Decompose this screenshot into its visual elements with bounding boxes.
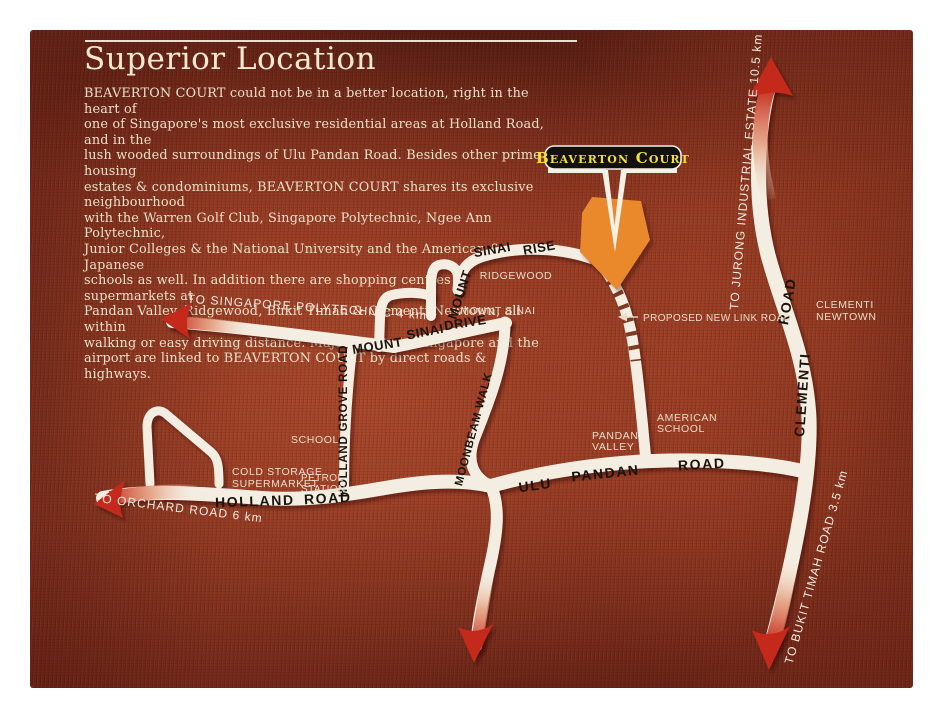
label-mount-sinai-estate: MOUNT SINAI	[460, 305, 535, 317]
label-ulu: ULU	[518, 475, 553, 496]
label-petrol-2: STATION	[301, 484, 346, 495]
label-school: SCHOOL	[291, 434, 339, 446]
label-pandan-valley-2: VALLEY	[592, 441, 635, 453]
label-clementi-newtown-2: NEWTOWN	[816, 311, 877, 323]
beaverton-court-label: Beaverton Court	[536, 149, 690, 167]
label-proposed-link: PROPOSED NEW LINK ROAD	[643, 313, 791, 324]
label-ridgewood: RIDGEWOOD	[480, 270, 552, 282]
label-american-school-2: SCHOOL	[657, 423, 705, 435]
label-ulu-road: ROAD	[678, 455, 726, 473]
label-petrol-1: PETROL	[301, 473, 343, 484]
map-canvas: Beaverton Court MOUNT SINAI RISE MOUNT S…	[0, 0, 943, 717]
label-clementi-newtown-1: CLEMENTI	[816, 299, 874, 311]
arrow-fade-jurong	[760, 88, 769, 200]
